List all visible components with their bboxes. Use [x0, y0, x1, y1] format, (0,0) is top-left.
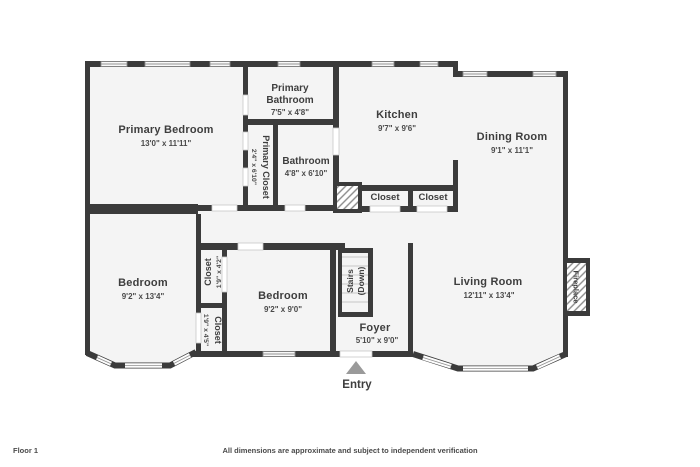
room-label-bathroom: Bathroom	[282, 156, 329, 167]
room-label-primary-closet: Primary Closet	[261, 135, 271, 199]
room-label-fireplace: Fireplace	[572, 271, 581, 304]
room-dims-primary-closet: 2'4" x 6'10"	[250, 149, 257, 185]
room-dims-kitchen: 9'7" x 9'6"	[378, 124, 416, 133]
room-dims-bathroom: 4'8" x 6'10"	[285, 169, 328, 178]
room-dims-primary-bathroom: 7'5" x 4'8"	[271, 108, 309, 117]
room-label-primary-bedroom: Primary Bedroom	[118, 124, 213, 136]
room-dims-closet-lower: 1'9" x 4'5"	[202, 314, 209, 346]
room-dims-dining-room: 9'1" x 11'1"	[491, 146, 533, 155]
floor-plan-canvas: Primary Bedroom 13'0" x 11'11" Primary B…	[0, 0, 700, 430]
room-dims-bedroom-left: 9'2" x 13'4"	[122, 292, 165, 301]
room-label-closet-kitchen-2: Closet	[418, 192, 448, 203]
room-dims-living-room: 12'11" x 13'4"	[464, 291, 515, 300]
room-label-living-room: Living Room	[454, 276, 523, 288]
room-label-primary-bathroom-2: Bathroom	[266, 95, 313, 106]
footer: Floor 1 All dimensions are approximate a…	[0, 444, 700, 460]
room-label-bedroom-left: Bedroom	[118, 277, 168, 289]
chimney-hatch	[337, 186, 358, 209]
room-label-dining-room: Dining Room	[477, 131, 548, 143]
entry-arrow-icon	[346, 361, 366, 374]
room-dims-primary-bedroom: 13'0" x 11'11"	[141, 139, 192, 148]
disclaimer-text: All dimensions are approximate and subje…	[0, 446, 700, 455]
room-label-bedroom-middle: Bedroom	[258, 290, 308, 302]
room-dims-foyer: 5'10" x 9'0"	[356, 336, 399, 345]
room-label-closet-upper: Closet	[203, 258, 213, 286]
room-label-primary-bathroom-1: Primary	[271, 83, 309, 94]
room-fills	[87, 64, 566, 369]
room-dims-bedroom-middle: 9'2" x 9'0"	[264, 305, 302, 314]
room-label-closet-lower: Closet	[213, 316, 223, 344]
room-dims-closet-upper: 1'9" x 4'2"	[216, 256, 223, 288]
floor-plan-page: Primary Bedroom 13'0" x 11'11" Primary B…	[0, 0, 700, 467]
room-label-stairs-2: (Down)	[356, 266, 366, 295]
room-label-foyer: Foyer	[360, 322, 391, 334]
room-label-stairs-1: Stairs	[345, 269, 355, 293]
room-label-closet-kitchen-1: Closet	[370, 192, 400, 203]
entry-label: Entry	[342, 379, 372, 391]
room-label-kitchen: Kitchen	[376, 109, 418, 121]
